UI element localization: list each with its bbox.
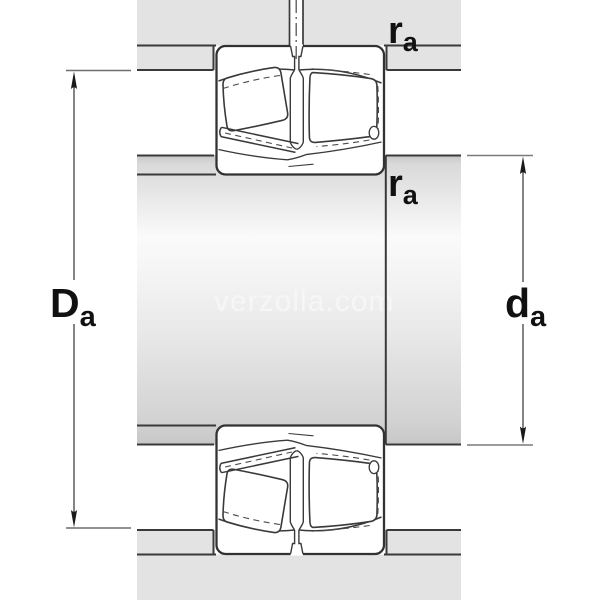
bearing-diagram: verzolla.com [0,0,600,600]
watermark-text: verzolla.com [214,285,394,318]
bearing-drawing-svg: verzolla.com [0,0,600,600]
bearing-top-section [217,44,385,174]
bearing-bottom-section [217,426,385,556]
